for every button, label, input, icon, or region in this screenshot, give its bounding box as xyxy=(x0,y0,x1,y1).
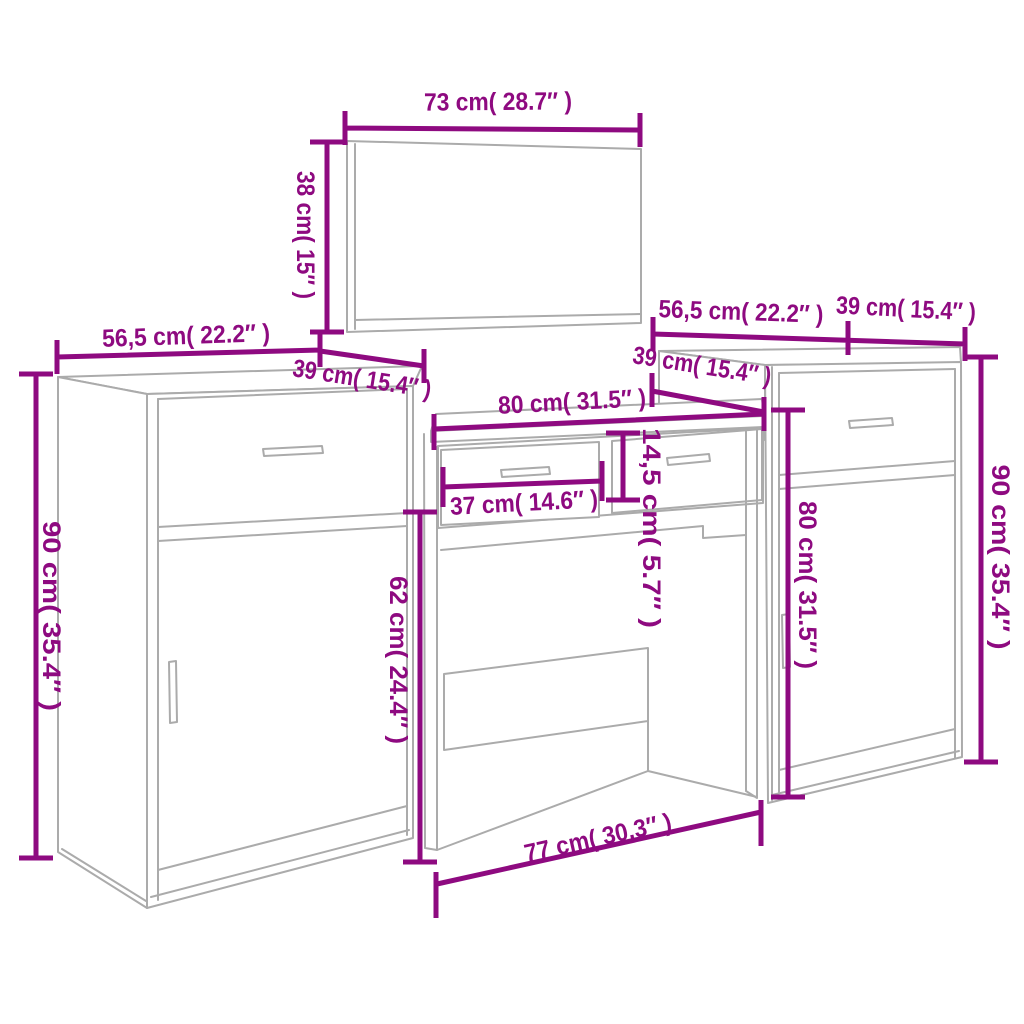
dim-mirror-height-label: 38 cm( 15″ ) xyxy=(291,171,319,299)
table-back-stretcher-panel xyxy=(444,648,648,750)
dim-right-cabinet-front-height-label: 80 cm( 31.5″ ) xyxy=(793,501,821,669)
dim-table-base-width-line xyxy=(436,800,761,918)
dressing-table xyxy=(424,399,764,850)
dim-table-base-width-label: 77 cm( 30.3″ ) xyxy=(522,808,675,868)
table-left-support xyxy=(424,434,437,850)
dim-right-cabinet-depth-label: 39 cm( 15.4″ ) xyxy=(835,291,976,326)
dim-right-cabinet-height-label: 90 cm( 35.4″ ) xyxy=(986,465,1014,650)
left-cabinet-front-face xyxy=(147,386,413,908)
dim-mirror-width-label: 73 cm( 28.7″ ) xyxy=(424,87,572,116)
dim-table-base-width: 77 cm( 30.3″ ) xyxy=(436,800,761,918)
dim-left-cabinet-width: 56,5 cm( 22.2″ ) xyxy=(57,319,320,374)
dim-left-cabinet-width-label: 56,5 cm( 22.2″ ) xyxy=(102,319,271,353)
dimension-diagram: 73 cm( 28.7″ ) 38 cm( 15″ ) 56,5 cm( 22.… xyxy=(0,0,1024,1024)
left-cabinet-side-panel xyxy=(58,377,147,908)
mirror xyxy=(347,141,641,332)
dim-table-leg-clearance-label: 62 cm( 24.4″ ) xyxy=(384,576,412,744)
dim-table-drawer-height-label: 14,5 cm( 5.7″ ) xyxy=(637,428,665,628)
dim-mirror-width: 73 cm( 28.7″ ) xyxy=(345,87,640,147)
dim-right-cabinet-width-label: 56,5 cm( 22.2″ ) xyxy=(658,295,824,329)
left-cabinet-door-handle xyxy=(169,661,177,723)
left-cabinet xyxy=(58,366,422,908)
table-apron-line xyxy=(441,526,746,550)
mirror-frame xyxy=(347,141,641,332)
dim-right-cabinet-height: 90 cm( 35.4″ ) xyxy=(964,357,1014,762)
furniture-line-art xyxy=(58,141,962,908)
dim-mirror-height: 38 cm( 15″ ) xyxy=(291,142,344,332)
dim-left-cabinet-height-label: 90 cm( 35.4″ ) xyxy=(37,521,65,711)
